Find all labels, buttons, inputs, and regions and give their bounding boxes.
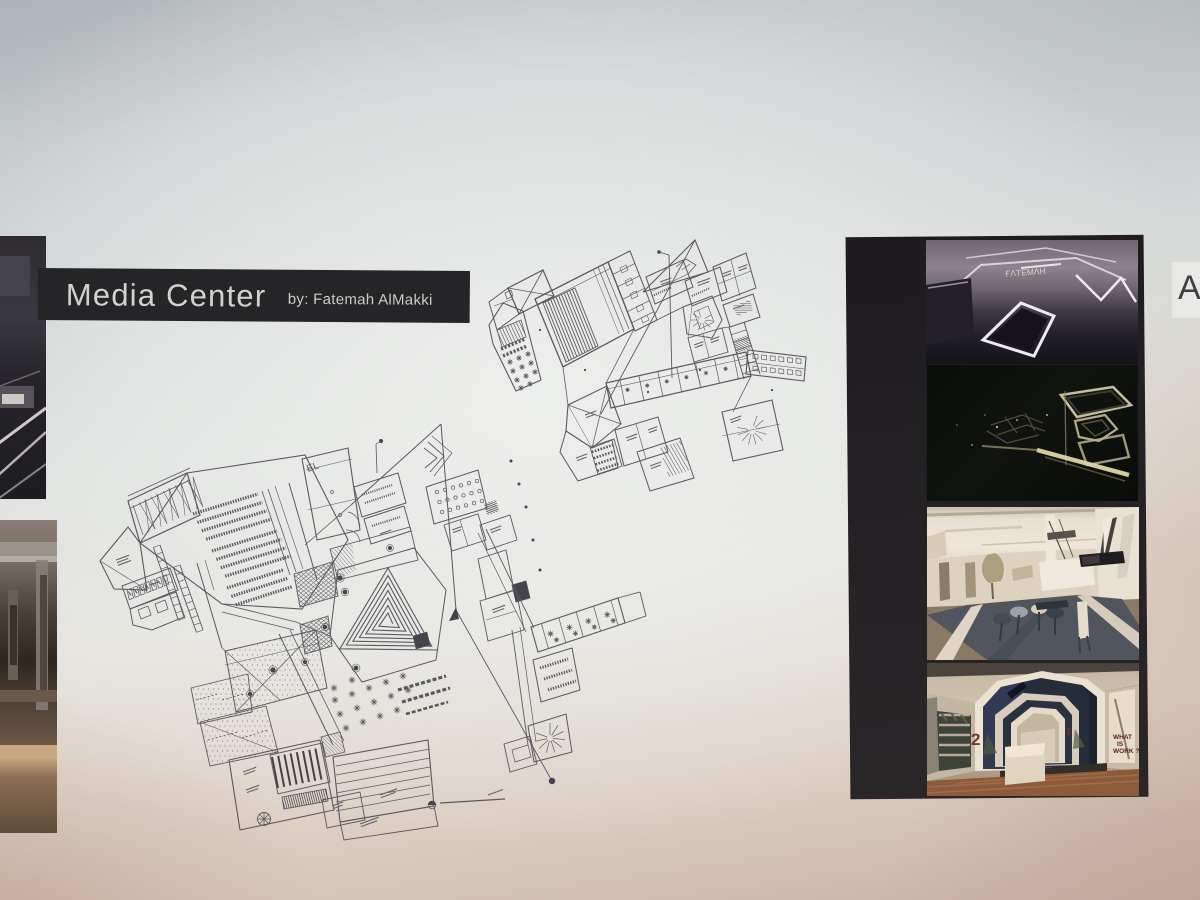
svg-text:EL: EL xyxy=(305,460,321,475)
svg-text:WORK ?: WORK ? xyxy=(1113,748,1139,755)
svg-text:3: 3 xyxy=(1065,726,1071,738)
svg-text:2: 2 xyxy=(971,730,980,749)
svg-text:ҒΛТЕМΛН: ҒΛТЕМΛН xyxy=(1005,266,1046,279)
svg-text:IS: IS xyxy=(1117,741,1124,748)
svg-text:WHAT: WHAT xyxy=(1113,734,1132,741)
